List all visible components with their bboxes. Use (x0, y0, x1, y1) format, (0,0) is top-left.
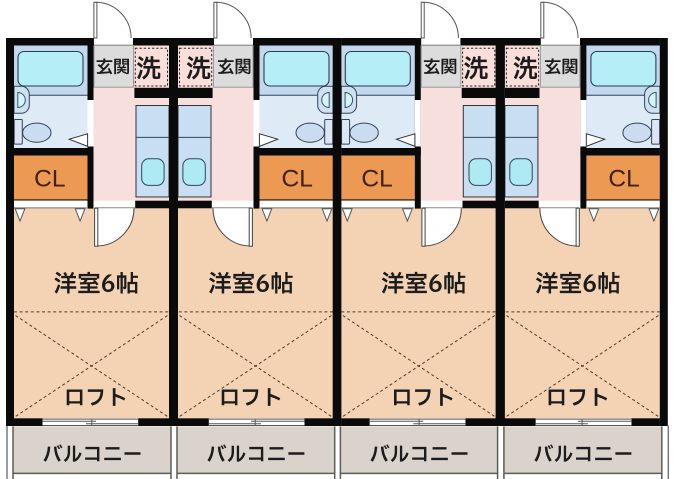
svg-text:CL: CL (34, 165, 65, 192)
svg-text:CL: CL (361, 165, 392, 192)
svg-text:CL: CL (282, 165, 313, 192)
svg-text:CL: CL (608, 165, 639, 192)
